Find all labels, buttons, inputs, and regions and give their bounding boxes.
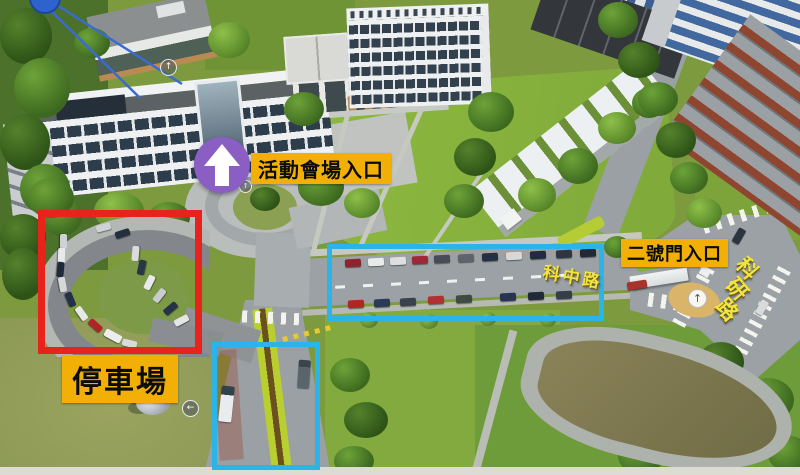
aerial-campus-photo: ↑ ↑ ← ↑ 活動會場入口 停車場 二號門入口 科中路 科 研 路: [0, 0, 800, 475]
bottom-road-strip: [0, 467, 800, 475]
up-arrow-glyph: ↑: [165, 63, 173, 72]
parking-highlight-box: [38, 210, 202, 354]
tree: [686, 198, 722, 228]
parking-label: 停車場: [62, 355, 178, 403]
map-pin-lines[interactable]: [0, 0, 220, 120]
building-tower-column: [481, 16, 492, 104]
gate2-label: 二號門入口: [621, 239, 728, 267]
pano-hotspot-left-icon[interactable]: ←: [182, 400, 199, 417]
tree: [558, 148, 598, 184]
tree: [656, 122, 696, 158]
up-arrow-glyph: ↑: [693, 293, 702, 304]
building-tower: [346, 4, 491, 109]
building-tower-grid: [347, 16, 492, 109]
venue-entrance-label: 活動會場入口: [251, 153, 391, 184]
tree: [518, 178, 556, 212]
tree: [468, 92, 514, 132]
tree: [0, 114, 50, 170]
tree: [638, 82, 678, 116]
tree: [618, 42, 660, 78]
venue-entrance-arrow-badge: [194, 137, 250, 193]
pano-hotspot-gate-icon[interactable]: ↑: [688, 289, 707, 308]
up-arrow-icon: [194, 137, 250, 193]
tree: [454, 138, 496, 176]
approach-road-highlight-box: [212, 342, 320, 470]
tree: [444, 184, 484, 218]
tree: [598, 112, 636, 144]
tree: [330, 358, 370, 392]
tree: [670, 162, 708, 194]
left-arrow-glyph: ←: [187, 404, 195, 413]
tree: [344, 402, 388, 438]
pano-hotspot-up-icon[interactable]: ↑: [160, 59, 177, 76]
tree: [284, 92, 324, 126]
map-pin-icon: [30, 0, 60, 13]
tree: [344, 188, 380, 218]
tree: [598, 2, 638, 38]
